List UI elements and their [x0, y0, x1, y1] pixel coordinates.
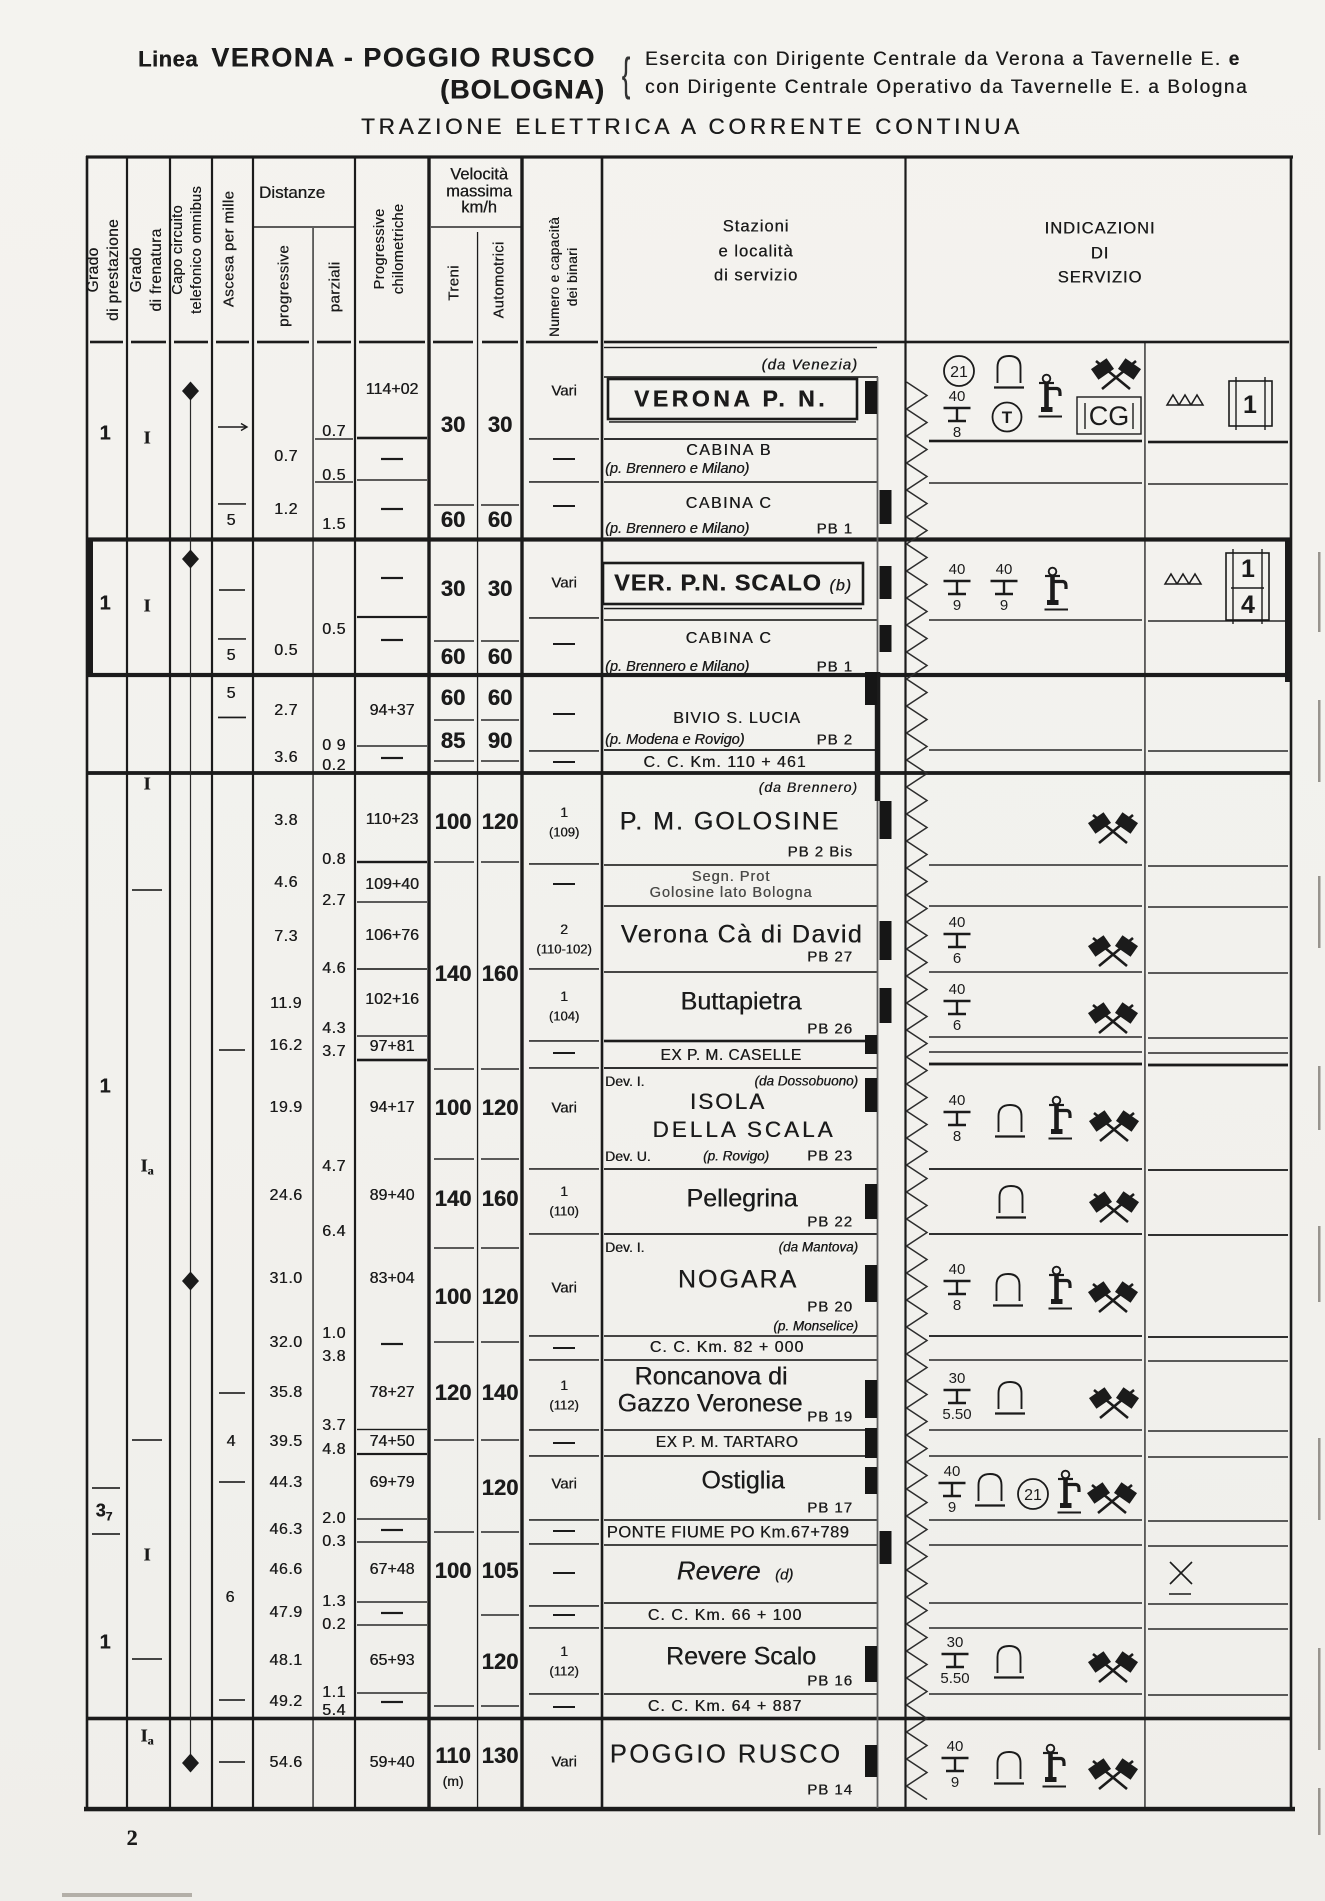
svg-text:6: 6: [953, 1017, 961, 1034]
svg-text:6: 6: [953, 950, 961, 967]
svg-text:8: 8: [953, 424, 961, 441]
svg-text:8: 8: [953, 1128, 961, 1145]
svg-text:40: 40: [949, 1261, 966, 1278]
svg-text:40: 40: [949, 388, 966, 405]
svg-text:5.50: 5.50: [942, 1406, 971, 1423]
svg-text:40: 40: [947, 1738, 964, 1755]
svg-text:21: 21: [1024, 1487, 1042, 1504]
svg-text:9: 9: [951, 1774, 959, 1791]
svg-text:1: 1: [1243, 391, 1257, 419]
svg-text:1: 1: [1241, 555, 1255, 583]
svg-text:40: 40: [944, 1463, 961, 1480]
svg-text:8: 8: [953, 1297, 961, 1314]
svg-text:40: 40: [949, 914, 966, 931]
svg-text:5.50: 5.50: [940, 1670, 969, 1687]
svg-text:CG: CG: [1089, 401, 1130, 431]
svg-text:30: 30: [949, 1370, 966, 1387]
svg-text:T: T: [1002, 408, 1013, 427]
svg-text:9: 9: [1000, 597, 1008, 614]
svg-text:40: 40: [949, 1092, 966, 1109]
svg-text:40: 40: [949, 561, 966, 578]
svg-text:30: 30: [947, 1634, 964, 1651]
svg-text:40: 40: [996, 561, 1013, 578]
svg-text:4: 4: [1241, 591, 1255, 619]
svg-text:9: 9: [953, 597, 961, 614]
svg-text:9: 9: [948, 1499, 956, 1516]
svg-text:21: 21: [950, 364, 968, 381]
svg-text:40: 40: [949, 981, 966, 998]
